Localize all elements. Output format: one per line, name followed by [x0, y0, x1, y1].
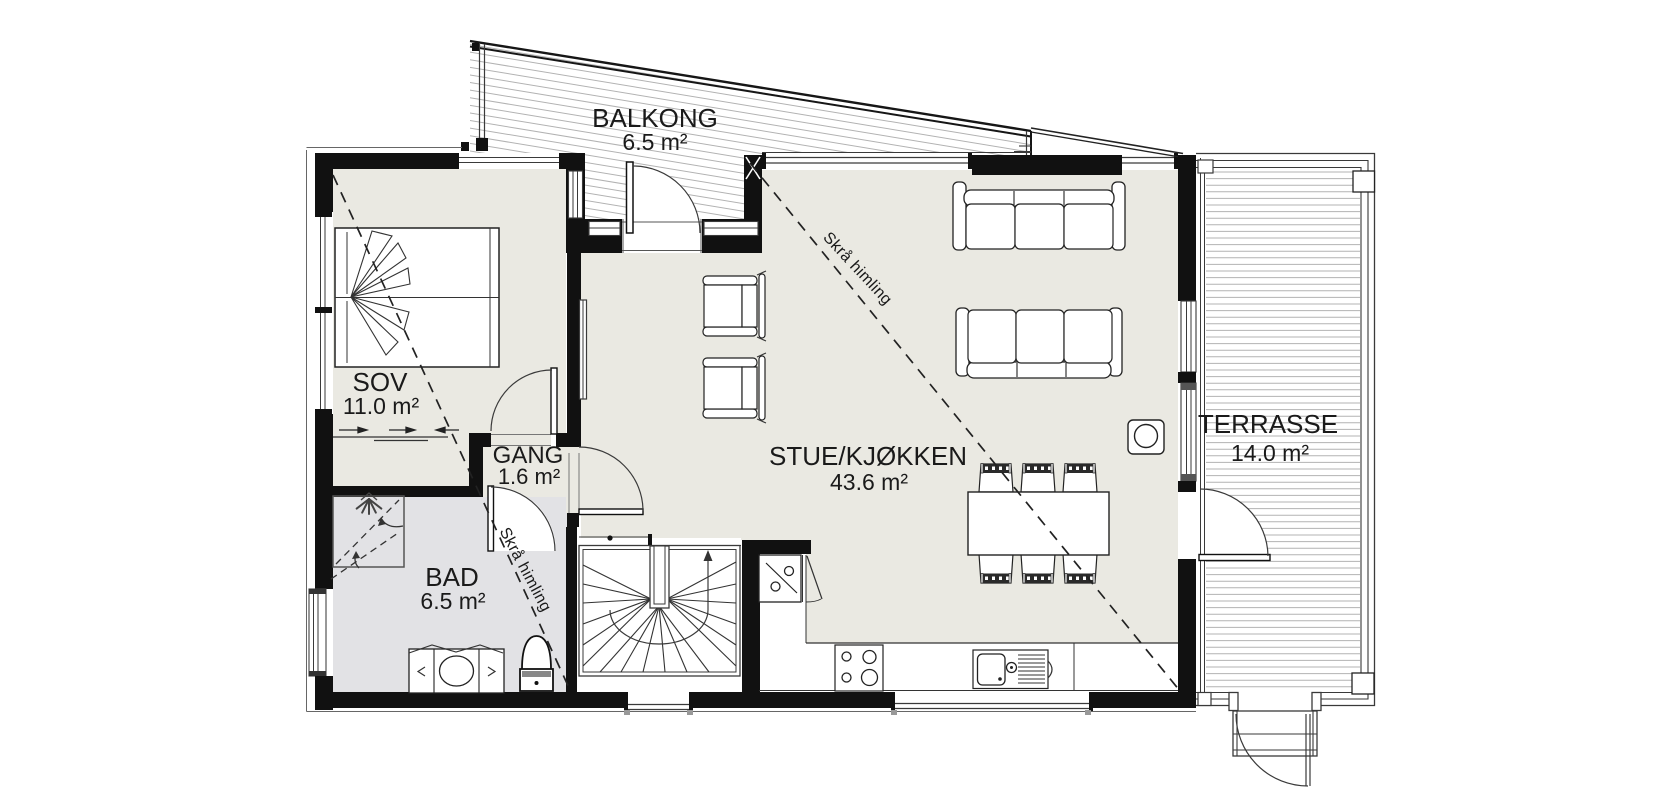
svg-text:11.0 m²: 11.0 m² [343, 393, 420, 419]
svg-text:6.5 m²: 6.5 m² [420, 588, 486, 614]
svg-text:6.5 m²: 6.5 m² [622, 129, 688, 155]
svg-text:STUE/KJØKKEN: STUE/KJØKKEN [769, 441, 967, 471]
svg-text:TERRASSE: TERRASSE [1198, 409, 1338, 439]
svg-text:14.0 m²: 14.0 m² [1231, 440, 1309, 466]
svg-text:1.6 m²: 1.6 m² [498, 464, 560, 489]
svg-text:43.6 m²: 43.6 m² [830, 469, 908, 495]
